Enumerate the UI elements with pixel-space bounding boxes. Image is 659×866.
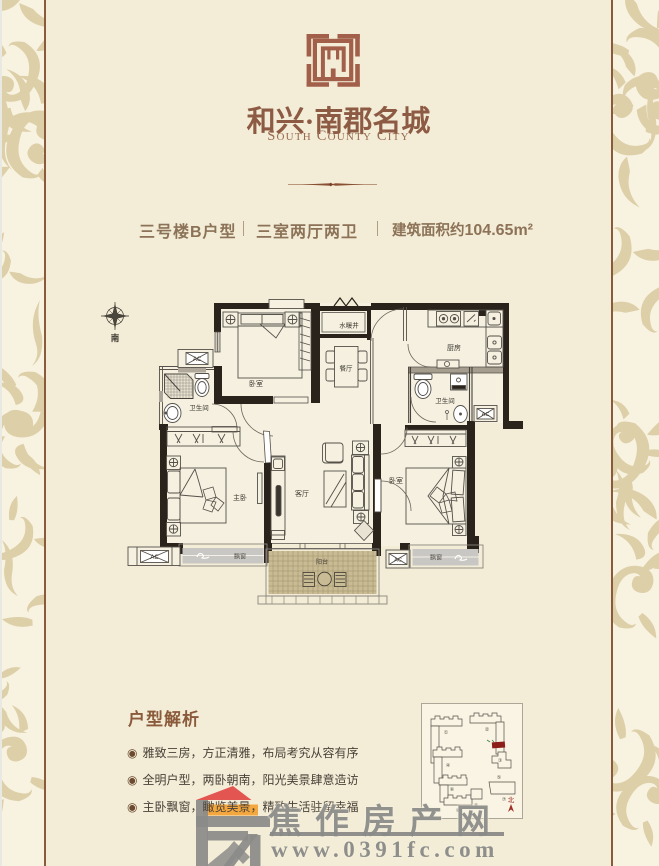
svg-text:⑥: ⑥ <box>450 787 455 793</box>
svg-text:AC: AC <box>394 558 402 564</box>
svg-text:②: ② <box>485 727 490 733</box>
svg-text:卫生间: 卫生间 <box>435 396 455 405</box>
svg-text:AC: AC <box>150 555 159 561</box>
svg-text:客厅: 客厅 <box>295 489 309 498</box>
svg-text:餐厅: 餐厅 <box>340 364 354 373</box>
svg-text:⑤: ⑤ <box>497 775 502 781</box>
svg-text:厨房: 厨房 <box>447 343 461 352</box>
svg-text:④: ④ <box>446 763 451 769</box>
svg-text:AC: AC <box>193 357 202 363</box>
svg-text:AC: AC <box>482 412 490 418</box>
svg-text:水暖井: 水暖井 <box>339 321 359 330</box>
svg-text:阳台: 阳台 <box>316 558 328 566</box>
svg-text:③: ③ <box>498 758 503 764</box>
svg-text:①: ① <box>444 730 449 736</box>
svg-text:飘窗: 飘窗 <box>430 554 442 562</box>
svg-text:北: 北 <box>508 796 515 804</box>
svg-text:卧室: 卧室 <box>249 379 263 388</box>
svg-text:卫生间: 卫生间 <box>189 403 209 412</box>
svg-text:卧室: 卧室 <box>389 476 403 485</box>
svg-text:飘窗: 飘窗 <box>234 553 246 561</box>
svg-text:南: 南 <box>111 333 120 343</box>
svg-text:主卧: 主卧 <box>233 493 247 502</box>
